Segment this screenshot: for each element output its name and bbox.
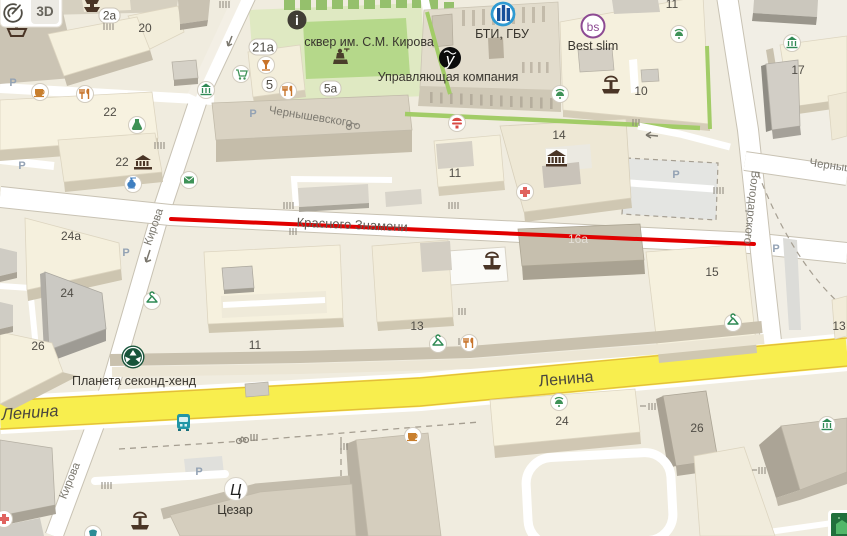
svg-text:13: 13 [832,319,846,333]
svg-text:Ц: Ц [230,482,242,499]
svg-text:17: 17 [791,63,805,77]
svg-text:14: 14 [552,128,566,142]
svg-text:сквер им. С.М. Кирова: сквер им. С.М. Кирова [304,35,434,49]
svg-text:2а: 2а [103,9,117,23]
svg-text:24: 24 [60,286,74,300]
svg-text:3D: 3D [36,4,54,19]
svg-text:Р: Р [249,108,256,120]
svg-text:26: 26 [690,421,704,435]
svg-text:21а: 21а [252,40,274,55]
svg-text:16а: 16а [568,232,588,246]
svg-text:Планета секонд-хенд: Планета секонд-хенд [72,374,197,388]
svg-text:11: 11 [249,338,262,352]
svg-text:20: 20 [138,21,152,35]
svg-text:Управляющая компания: Управляющая компания [378,70,519,84]
svg-text:i: i [295,12,299,28]
svg-text:11: 11 [449,166,462,180]
svg-text:15: 15 [705,265,719,279]
svg-text:БТИ, ГБУ: БТИ, ГБУ [475,27,529,41]
svg-text:Цезар: Цезар [217,503,253,517]
svg-text:22: 22 [115,155,129,169]
svg-text:Best slim: Best slim [568,39,619,53]
svg-text:bs: bs [587,20,600,34]
svg-text:Р: Р [122,247,129,259]
svg-text:Р: Р [195,466,202,478]
svg-text:5: 5 [266,77,273,92]
svg-text:Р: Р [672,169,679,181]
svg-text:11: 11 [666,0,679,11]
svg-text:24а: 24а [61,229,81,243]
svg-text:10: 10 [634,84,648,98]
svg-text:13: 13 [410,319,424,333]
svg-text:Р: Р [9,77,16,89]
svg-text:Р: Р [772,243,779,255]
svg-text:22: 22 [103,105,117,119]
svg-text:26: 26 [31,339,45,353]
svg-text:24: 24 [555,414,569,428]
svg-text:5а: 5а [324,82,338,96]
svg-text:Р: Р [18,160,25,172]
